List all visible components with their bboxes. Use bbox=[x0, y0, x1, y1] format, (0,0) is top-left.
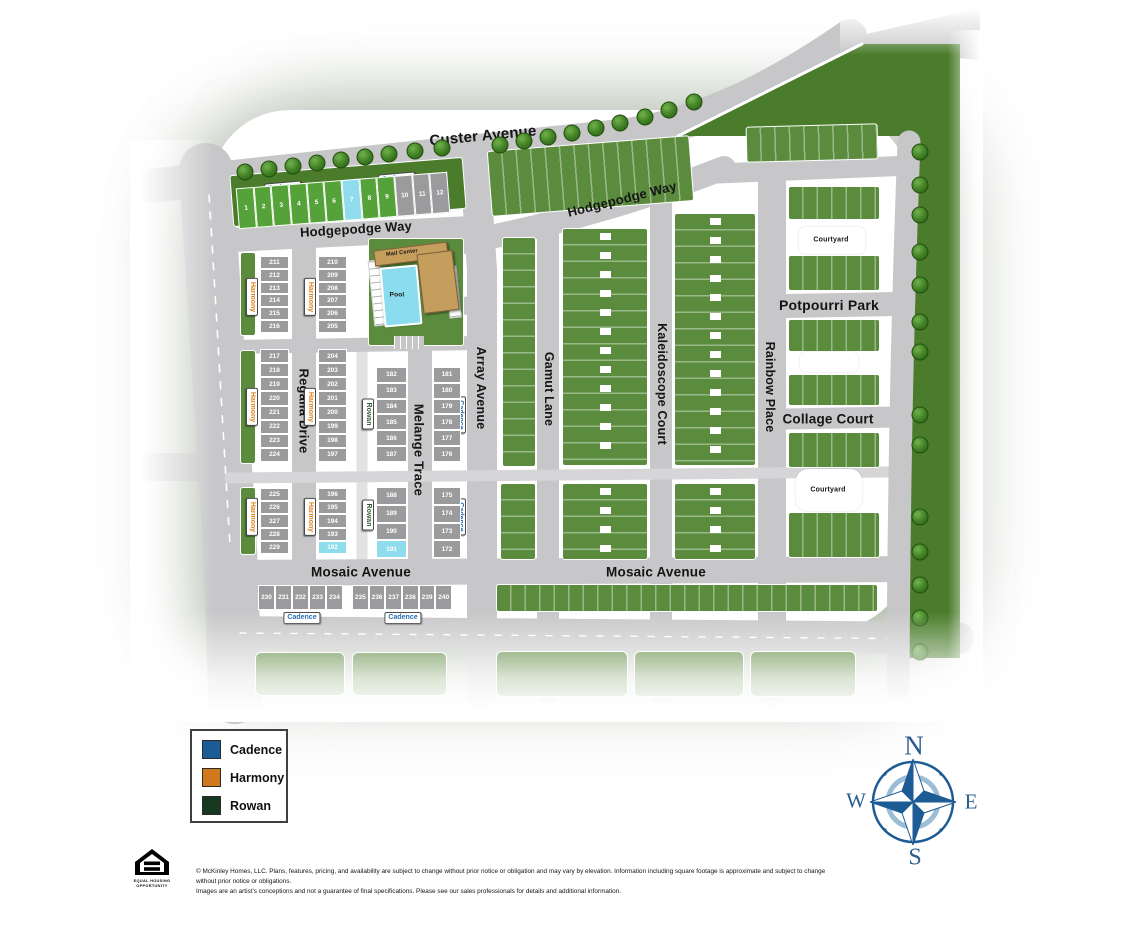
lot-234[interactable]: 234 bbox=[326, 585, 343, 610]
lot-200[interactable]: 200 bbox=[318, 406, 347, 420]
lot-180[interactable]: 180 bbox=[433, 383, 461, 399]
lots-182-187: 182183184185186187 bbox=[376, 367, 407, 462]
clubhouse-building bbox=[416, 250, 459, 314]
green-block-r6 bbox=[788, 512, 880, 558]
harmony-badge-2: Harmony bbox=[304, 278, 316, 316]
lot-number: 223 bbox=[269, 437, 280, 444]
lot-189[interactable]: 189 bbox=[376, 505, 407, 523]
lot-213[interactable]: 213 bbox=[260, 282, 289, 295]
lot-205[interactable]: 205 bbox=[318, 320, 347, 333]
lot-number: 213 bbox=[269, 285, 280, 292]
disclaimer-line-1: © McKinley Homes, LLC. Plans, features, … bbox=[196, 867, 841, 887]
tree-icon bbox=[612, 115, 629, 132]
lot-number: 174 bbox=[442, 510, 453, 517]
lot-number: 237 bbox=[388, 594, 399, 601]
tree-icon bbox=[912, 207, 929, 224]
tree-icon bbox=[407, 143, 424, 160]
green-block-bottom-2 bbox=[352, 652, 447, 696]
street-label-mosaic-east: Mosaic Avenue bbox=[606, 565, 706, 580]
lot-237[interactable]: 237 bbox=[385, 585, 402, 610]
lot-number: 214 bbox=[269, 297, 280, 304]
place-label-pool: Pool bbox=[390, 292, 405, 299]
tree-icon bbox=[912, 509, 929, 526]
lot-number: 228 bbox=[269, 531, 280, 538]
rowan-badge-2: Rowan bbox=[362, 500, 374, 531]
lot-number: 185 bbox=[386, 419, 397, 426]
lot-number: 230 bbox=[261, 594, 272, 601]
lot-number: 240 bbox=[438, 594, 449, 601]
tree-icon bbox=[912, 407, 929, 424]
lot-198[interactable]: 198 bbox=[318, 434, 347, 448]
lots-235-240: 235236237238239240 bbox=[352, 585, 452, 610]
lot-number: 2 bbox=[262, 203, 266, 210]
lots-225-229: 225226227228229 bbox=[260, 488, 289, 554]
lot-178[interactable]: 178 bbox=[433, 414, 461, 430]
tree-icon bbox=[357, 149, 374, 166]
tree-icon bbox=[912, 277, 929, 294]
tree-icon bbox=[912, 344, 929, 361]
tree-icon bbox=[261, 161, 278, 178]
lot-223[interactable]: 223 bbox=[260, 434, 289, 448]
tree-icon bbox=[912, 437, 929, 454]
compass-rose: N W E S bbox=[845, 730, 985, 875]
lot-number: 210 bbox=[327, 259, 338, 266]
lot-220[interactable]: 220 bbox=[260, 391, 289, 405]
lot-225[interactable]: 225 bbox=[260, 488, 289, 501]
tree-icon bbox=[540, 129, 557, 146]
lot-number: 203 bbox=[327, 367, 338, 374]
tree-icon bbox=[661, 102, 678, 119]
lot-number: 201 bbox=[327, 395, 338, 402]
lot-194[interactable]: 194 bbox=[318, 514, 347, 527]
tree-icon bbox=[309, 155, 326, 172]
lot-number: 190 bbox=[386, 528, 397, 535]
lot-number: 193 bbox=[327, 531, 338, 538]
lot-number: 7 bbox=[350, 196, 354, 203]
lot-number: 226 bbox=[269, 504, 280, 511]
lot-number: 205 bbox=[327, 323, 338, 330]
lot-193[interactable]: 193 bbox=[318, 528, 347, 541]
lot-number: 6 bbox=[332, 198, 336, 205]
green-block-kaleidoscope-lower bbox=[674, 483, 756, 560]
lot-number: 209 bbox=[327, 272, 338, 279]
tree-icon bbox=[912, 244, 929, 261]
place-label-potpourri-park: Potpourri Park bbox=[779, 297, 879, 313]
green-block-bottom-4 bbox=[634, 651, 744, 697]
tree-icon bbox=[912, 314, 929, 331]
legend-label: Harmony bbox=[230, 771, 284, 785]
tree-icon bbox=[912, 544, 929, 561]
tree-icon bbox=[686, 94, 703, 111]
lot-183[interactable]: 183 bbox=[376, 383, 407, 399]
lot-number: 180 bbox=[442, 387, 453, 394]
parking-strip-south bbox=[394, 336, 424, 349]
street-label-melange: Melange Trace bbox=[412, 404, 427, 496]
lot-number: 194 bbox=[327, 518, 338, 525]
lot-240[interactable]: 240 bbox=[435, 585, 452, 610]
lot-number: 177 bbox=[442, 435, 453, 442]
lot-number: 219 bbox=[269, 381, 280, 388]
green-strip-south-mosaic bbox=[496, 584, 878, 612]
lot-227[interactable]: 227 bbox=[260, 514, 289, 527]
green-block-gamut-west-upper bbox=[502, 237, 536, 467]
lot-233[interactable]: 233 bbox=[309, 585, 326, 610]
lot-number: 183 bbox=[386, 387, 397, 394]
lot-231[interactable]: 231 bbox=[275, 585, 292, 610]
lot-number: 181 bbox=[442, 371, 453, 378]
lot-229[interactable]: 229 bbox=[260, 541, 289, 554]
lot-226[interactable]: 226 bbox=[260, 501, 289, 514]
street-label-gamut: Gamut Lane bbox=[542, 352, 556, 426]
green-block-r3 bbox=[788, 319, 880, 352]
compass-north-label: N bbox=[904, 731, 924, 762]
lot-number: 215 bbox=[269, 310, 280, 317]
tree-icon bbox=[912, 644, 929, 661]
site-plan-page: Custer Avenue Hodgepodge Way Hodgepodge … bbox=[0, 0, 1140, 930]
lot-209[interactable]: 209 bbox=[318, 269, 347, 282]
lot-number: 233 bbox=[312, 594, 323, 601]
lot-number: 195 bbox=[327, 504, 338, 511]
place-label-courtyard-north: Courtyard bbox=[813, 237, 848, 244]
lot-204[interactable]: 204 bbox=[318, 349, 347, 363]
lot-238[interactable]: 238 bbox=[402, 585, 419, 610]
lot-number: 188 bbox=[386, 492, 397, 499]
lot-212[interactable]: 212 bbox=[260, 269, 289, 282]
lot-182[interactable]: 182 bbox=[376, 367, 407, 383]
lot-199[interactable]: 199 bbox=[318, 420, 347, 434]
lot-number: 173 bbox=[442, 528, 453, 535]
lot-207[interactable]: 207 bbox=[318, 294, 347, 307]
lot-number: 220 bbox=[269, 395, 280, 402]
tree-icon bbox=[637, 109, 654, 126]
compass-east-label: E bbox=[965, 790, 978, 815]
equal-housing-logo: EQUAL HOUSING OPPORTUNITY bbox=[131, 848, 173, 888]
lot-number: 8 bbox=[367, 195, 371, 202]
tree-icon bbox=[237, 164, 254, 181]
harmony-badge-5: Harmony bbox=[246, 498, 258, 536]
lot-number: 11 bbox=[419, 190, 426, 198]
lot-number: 192 bbox=[327, 544, 338, 551]
legend-swatch-cadence bbox=[202, 740, 221, 759]
legend-label: Cadence bbox=[230, 743, 282, 757]
green-block-bottom-5 bbox=[750, 651, 856, 697]
lot-201[interactable]: 201 bbox=[318, 391, 347, 405]
tree-icon bbox=[434, 140, 451, 157]
legend-item-harmony: Harmony bbox=[202, 768, 286, 787]
lots-188-191: 188189190191 bbox=[376, 487, 407, 558]
lot-number: 189 bbox=[386, 510, 397, 517]
lot-number: 229 bbox=[269, 544, 280, 551]
lot-179[interactable]: 179 bbox=[433, 399, 461, 415]
harmony-badge-1: Harmony bbox=[246, 278, 258, 316]
lot-number: 225 bbox=[269, 491, 280, 498]
street-label-rainbow: Rainbow Place bbox=[763, 342, 777, 433]
lot-12[interactable]: 12 bbox=[430, 172, 451, 214]
lot-number: 217 bbox=[269, 353, 280, 360]
lot-number: 178 bbox=[442, 419, 453, 426]
lot-206[interactable]: 206 bbox=[318, 307, 347, 320]
lot-224[interactable]: 224 bbox=[260, 448, 289, 462]
lot-number: 235 bbox=[355, 594, 366, 601]
lot-number: 232 bbox=[295, 594, 306, 601]
lot-number: 227 bbox=[269, 518, 280, 525]
lot-228[interactable]: 228 bbox=[260, 528, 289, 541]
lot-192[interactable]: 192 bbox=[318, 541, 347, 554]
tree-icon bbox=[912, 177, 929, 194]
lot-181[interactable]: 181 bbox=[433, 367, 461, 383]
lot-number: 5 bbox=[315, 199, 319, 206]
street-label-mosaic-west: Mosaic Avenue bbox=[311, 565, 411, 580]
lot-number: 4 bbox=[297, 200, 301, 207]
tree-icon bbox=[492, 137, 509, 154]
compass-west-label: W bbox=[846, 789, 866, 814]
equal-housing-text-2: OPPORTUNITY bbox=[131, 883, 173, 888]
harmony-badge-3: Harmony bbox=[246, 388, 258, 426]
green-block-gamut-west-lower bbox=[500, 483, 536, 560]
lot-197[interactable]: 197 bbox=[318, 448, 347, 462]
lot-191[interactable]: 191 bbox=[376, 540, 407, 558]
lot-number: 221 bbox=[269, 409, 280, 416]
legend-item-cadence: Cadence bbox=[202, 740, 286, 759]
lots-175-172: 175174173172 bbox=[433, 487, 461, 558]
lot-number: 207 bbox=[327, 297, 338, 304]
lots-204-197: 204203202201200199198197 bbox=[318, 349, 347, 462]
equal-housing-house-icon bbox=[133, 848, 171, 878]
lot-number: 216 bbox=[269, 323, 280, 330]
lot-239[interactable]: 239 bbox=[419, 585, 436, 610]
lots-230-234: 230231232233234 bbox=[258, 585, 343, 610]
place-label-courtyard-south: Courtyard bbox=[810, 487, 845, 494]
lot-203[interactable]: 203 bbox=[318, 363, 347, 377]
lot-number: 175 bbox=[442, 492, 453, 499]
lot-number: 224 bbox=[269, 451, 280, 458]
lot-number: 212 bbox=[269, 272, 280, 279]
lot-number: 172 bbox=[442, 546, 453, 553]
green-block-topright-a bbox=[746, 123, 879, 162]
lot-number: 184 bbox=[386, 403, 397, 410]
lot-217[interactable]: 217 bbox=[260, 349, 289, 363]
lot-number: 182 bbox=[386, 371, 397, 378]
lot-230[interactable]: 230 bbox=[258, 585, 275, 610]
green-block-bottom-3 bbox=[496, 651, 628, 697]
tree-icon bbox=[564, 125, 581, 142]
tree-icon bbox=[912, 144, 929, 161]
lot-number: 236 bbox=[372, 594, 383, 601]
compass-star-icon bbox=[865, 754, 961, 850]
tree-icon bbox=[516, 133, 533, 150]
lot-number: 218 bbox=[269, 367, 280, 374]
green-block-r2 bbox=[788, 255, 880, 291]
lot-211[interactable]: 211 bbox=[260, 256, 289, 269]
lot-174[interactable]: 174 bbox=[433, 505, 461, 523]
cadence-badge-bottom-1: Cadence bbox=[283, 612, 320, 624]
legend: CadenceHarmonyRowan bbox=[190, 729, 288, 823]
lot-number: 9 bbox=[385, 193, 389, 200]
lot-number: 206 bbox=[327, 310, 338, 317]
lot-number: 208 bbox=[327, 285, 338, 292]
lots-217-224: 217218219220221222223224 bbox=[260, 349, 289, 462]
lot-208[interactable]: 208 bbox=[318, 282, 347, 295]
lots-181-176: 181180179178177176 bbox=[433, 367, 461, 462]
rowan-badge-1: Rowan bbox=[362, 399, 374, 430]
tree-icon bbox=[912, 610, 929, 627]
lots-210-205: 210209208207206205 bbox=[318, 256, 347, 333]
lot-175[interactable]: 175 bbox=[433, 487, 461, 505]
lot-number: 239 bbox=[422, 594, 433, 601]
lot-214[interactable]: 214 bbox=[260, 294, 289, 307]
lot-215[interactable]: 215 bbox=[260, 307, 289, 320]
green-block-topright-b bbox=[788, 186, 880, 220]
lot-219[interactable]: 219 bbox=[260, 377, 289, 391]
disclaimer-text: © McKinley Homes, LLC. Plans, features, … bbox=[196, 867, 841, 897]
lot-202[interactable]: 202 bbox=[318, 377, 347, 391]
lot-221[interactable]: 221 bbox=[260, 406, 289, 420]
green-block-r5 bbox=[788, 432, 880, 468]
lot-188[interactable]: 188 bbox=[376, 487, 407, 505]
green-block-r4 bbox=[788, 374, 880, 406]
green-block-kaleidoscope-upper bbox=[674, 213, 756, 466]
green-block-bottom-1 bbox=[255, 652, 345, 696]
lot-number: 211 bbox=[269, 259, 280, 266]
building-pad-r3 bbox=[800, 352, 858, 372]
lot-number: 186 bbox=[386, 435, 397, 442]
tree-icon bbox=[588, 120, 605, 137]
lot-number: 200 bbox=[327, 409, 338, 416]
lot-number: 179 bbox=[442, 403, 453, 410]
lot-218[interactable]: 218 bbox=[260, 363, 289, 377]
tree-icon bbox=[912, 577, 929, 594]
lot-176[interactable]: 176 bbox=[433, 446, 461, 462]
lot-172[interactable]: 172 bbox=[433, 540, 461, 558]
compass-south-label: S bbox=[908, 845, 921, 872]
legend-item-rowan: Rowan bbox=[202, 796, 286, 815]
lot-177[interactable]: 177 bbox=[433, 430, 461, 446]
lot-number: 199 bbox=[327, 423, 338, 430]
lot-187[interactable]: 187 bbox=[376, 446, 407, 462]
lot-number: 198 bbox=[327, 437, 338, 444]
lot-number: 204 bbox=[327, 353, 338, 360]
lot-number: 231 bbox=[278, 594, 289, 601]
lot-196[interactable]: 196 bbox=[318, 488, 347, 501]
lot-number: 176 bbox=[442, 451, 453, 458]
lot-number: 3 bbox=[279, 202, 283, 209]
tree-icon bbox=[285, 158, 302, 175]
green-block-gamut-east-upper bbox=[562, 228, 648, 466]
lot-number: 187 bbox=[386, 451, 397, 458]
cadence-badge-bottom-2: Cadence bbox=[384, 612, 421, 624]
lot-173[interactable]: 173 bbox=[433, 523, 461, 541]
lot-number: 234 bbox=[329, 594, 340, 601]
lot-185[interactable]: 185 bbox=[376, 414, 407, 430]
lot-number: 202 bbox=[327, 381, 338, 388]
lot-210[interactable]: 210 bbox=[318, 256, 347, 269]
lot-216[interactable]: 216 bbox=[260, 320, 289, 333]
lots-196-192: 196195194193192 bbox=[318, 488, 347, 554]
lot-number: 12 bbox=[436, 189, 444, 197]
lot-235[interactable]: 235 bbox=[352, 585, 369, 610]
harmony-badge-4: Harmony bbox=[304, 388, 316, 426]
legend-swatch-rowan bbox=[202, 796, 221, 815]
lot-190[interactable]: 190 bbox=[376, 523, 407, 541]
street-label-array: Array Avenue bbox=[474, 347, 488, 430]
tree-icon bbox=[381, 146, 398, 163]
street-label-kaleidoscope: Kaleidoscope Court bbox=[655, 323, 669, 445]
green-block-gamut-east-lower bbox=[562, 483, 648, 560]
tree-icon bbox=[333, 152, 350, 169]
harmony-badge-6: Harmony bbox=[304, 498, 316, 536]
lot-number: 1 bbox=[244, 204, 248, 211]
lots-211-216: 211212213214215216 bbox=[260, 256, 289, 333]
lot-number: 197 bbox=[327, 451, 338, 458]
place-label-collage-court: Collage Court bbox=[782, 412, 873, 427]
lot-236[interactable]: 236 bbox=[369, 585, 386, 610]
lot-186[interactable]: 186 bbox=[376, 430, 407, 446]
lot-number: 10 bbox=[401, 192, 409, 200]
lot-195[interactable]: 195 bbox=[318, 501, 347, 514]
lot-232[interactable]: 232 bbox=[292, 585, 309, 610]
lot-184[interactable]: 184 bbox=[376, 399, 407, 415]
lot-222[interactable]: 222 bbox=[260, 420, 289, 434]
legend-swatch-harmony bbox=[202, 768, 221, 787]
lot-number: 196 bbox=[327, 491, 338, 498]
legend-label: Rowan bbox=[230, 799, 271, 813]
lot-number: 191 bbox=[386, 546, 397, 553]
lot-number: 222 bbox=[269, 423, 280, 430]
disclaimer-line-2: Images are an artist's conceptions and n… bbox=[196, 887, 841, 897]
lot-number: 238 bbox=[405, 594, 416, 601]
